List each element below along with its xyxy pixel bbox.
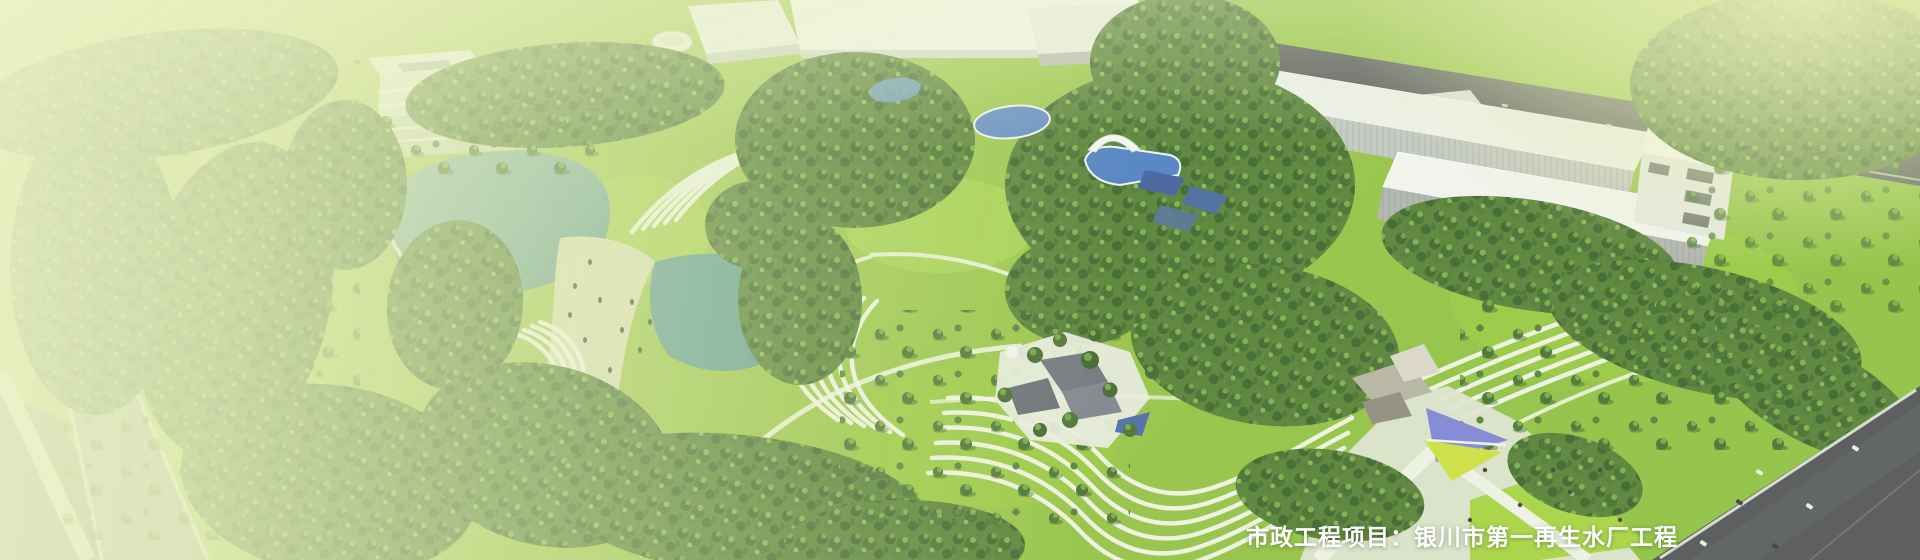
project-banner: 市政工程项目：银川市第一再生水厂工程 <box>0 0 1920 560</box>
industrial-sheds <box>652 0 1160 66</box>
aerial-rendering-canvas <box>0 0 1920 560</box>
project-caption: 市政工程项目：银川市第一再生水厂工程 <box>1246 518 1678 552</box>
